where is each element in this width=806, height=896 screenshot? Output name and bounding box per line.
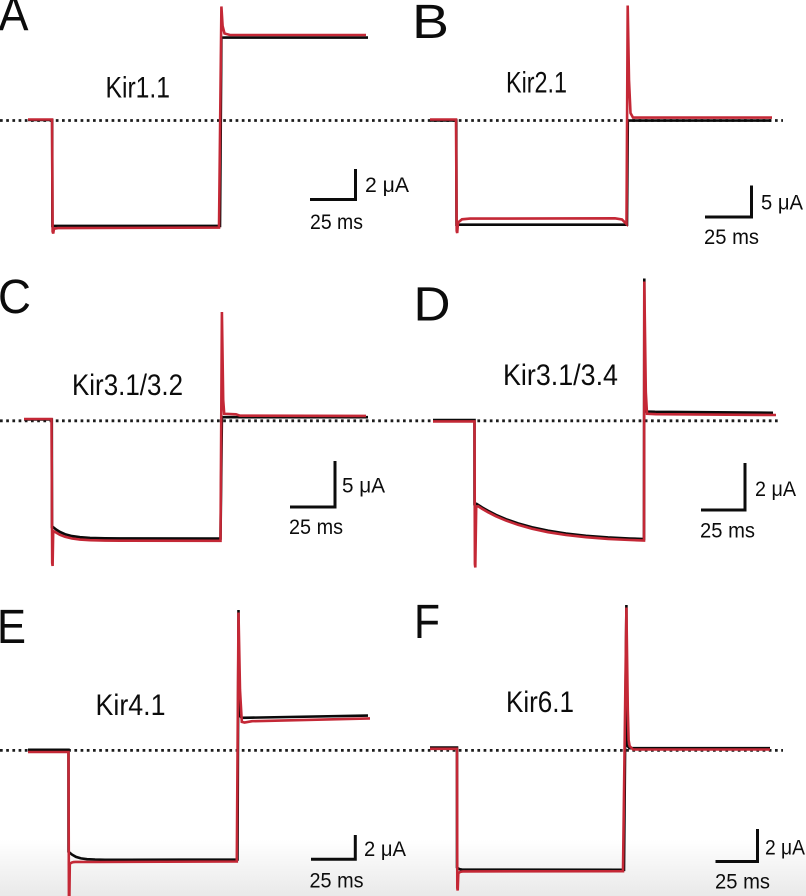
svg-text:25 ms: 25 ms bbox=[704, 226, 759, 249]
svg-text:Kir2.1: Kir2.1 bbox=[506, 66, 567, 99]
svg-text:B: B bbox=[412, 0, 449, 49]
svg-text:Kir3.1/3.2: Kir3.1/3.2 bbox=[72, 369, 183, 402]
svg-text:25 ms: 25 ms bbox=[310, 211, 363, 234]
svg-text:C: C bbox=[0, 271, 31, 324]
svg-text:2 μA: 2 μA bbox=[765, 837, 805, 860]
svg-text:2 μA: 2 μA bbox=[365, 174, 409, 197]
svg-text:Kir3.1/3.4: Kir3.1/3.4 bbox=[503, 359, 618, 392]
svg-text:A: A bbox=[0, 0, 29, 41]
svg-text:25 ms: 25 ms bbox=[700, 520, 755, 543]
svg-text:25 ms: 25 ms bbox=[715, 871, 770, 894]
svg-text:25 ms: 25 ms bbox=[289, 516, 343, 539]
svg-text:E: E bbox=[0, 601, 26, 654]
svg-text:Kir1.1: Kir1.1 bbox=[106, 71, 171, 104]
svg-text:25 ms: 25 ms bbox=[310, 870, 364, 893]
svg-text:F: F bbox=[414, 596, 440, 649]
svg-text:Kir4.1: Kir4.1 bbox=[96, 689, 166, 722]
svg-text:5 μA: 5 μA bbox=[761, 192, 803, 215]
svg-text:D: D bbox=[414, 279, 451, 332]
svg-text:2 μA: 2 μA bbox=[364, 838, 406, 861]
svg-text:2 μA: 2 μA bbox=[755, 478, 796, 501]
svg-text:Kir6.1: Kir6.1 bbox=[506, 686, 574, 719]
svg-text:5 μA: 5 μA bbox=[342, 475, 385, 498]
